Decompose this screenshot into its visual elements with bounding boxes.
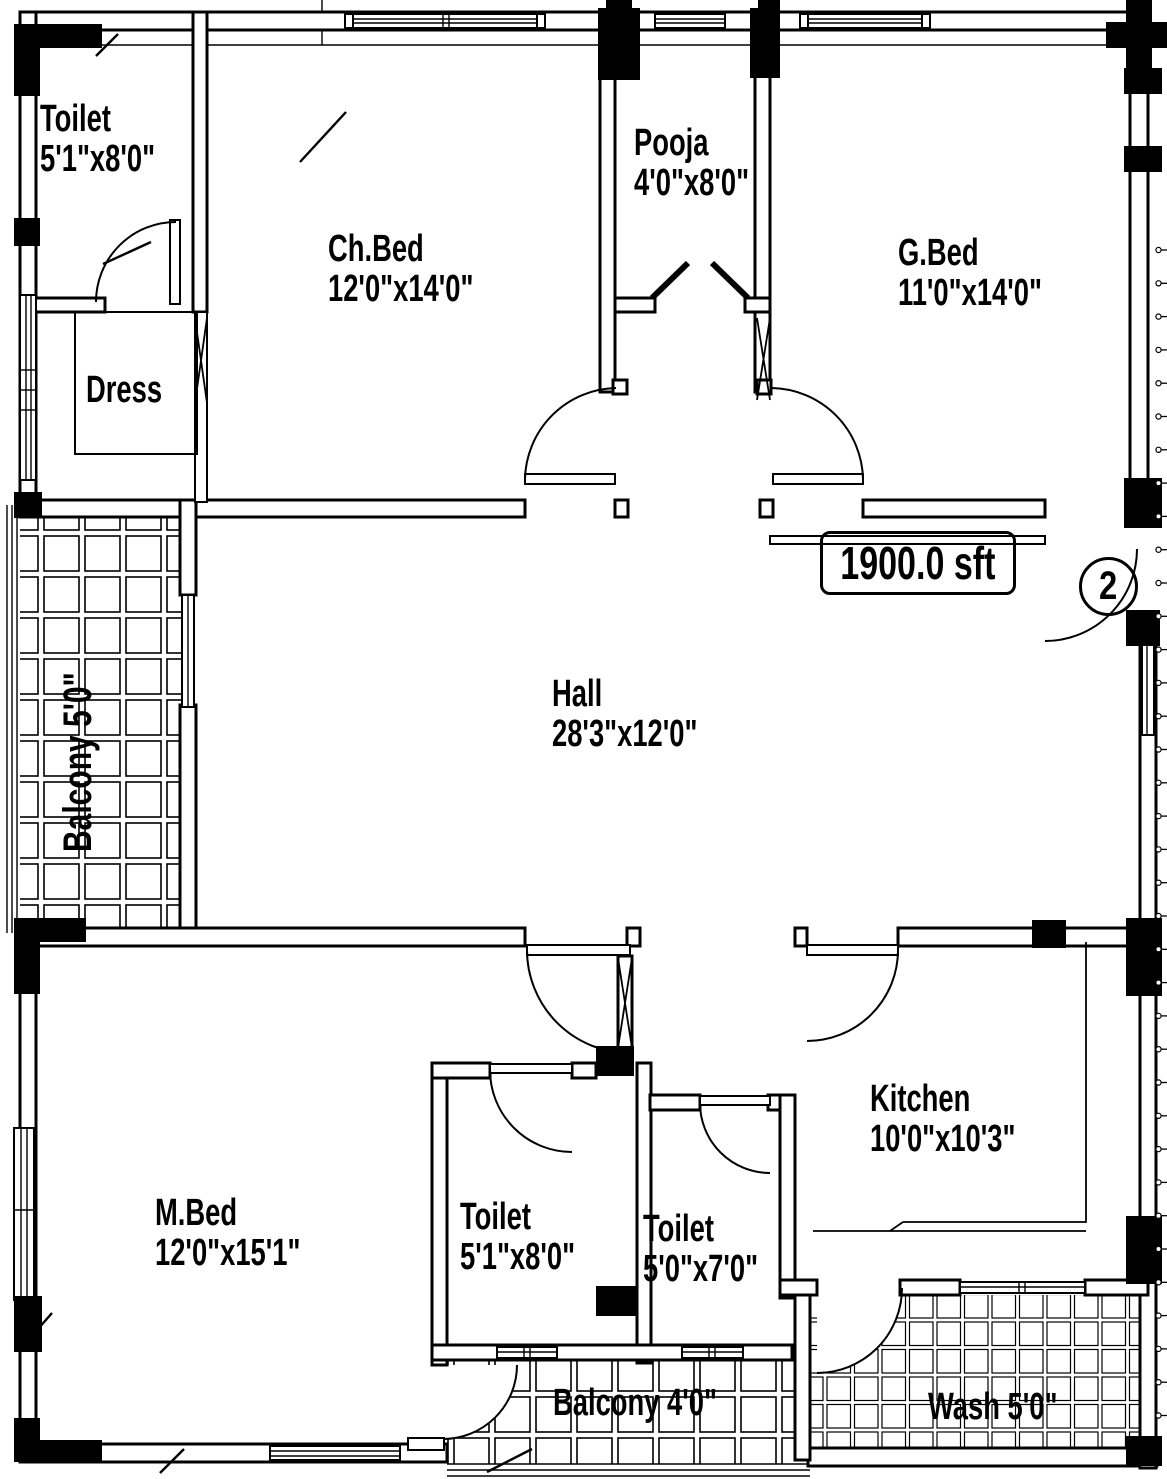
room-label-toilet-bottom-left: Toilet 5'1"x8'0" (460, 1198, 575, 1278)
room-label-ch-bed: Ch.Bed 12'0"x14'0" (328, 230, 473, 310)
unit-number-badge: 2 (1079, 557, 1138, 616)
room-label-kitchen: Kitchen 10'0"x10'3" (870, 1080, 1015, 1160)
floor-plan: Toilet 5'1"x8'0" Ch.Bed 12'0"x14'0" Pooj… (0, 0, 1167, 1479)
room-label-hall: Hall 28'3"x12'0" (552, 675, 697, 755)
balcony-left-tiles (20, 512, 182, 930)
room-label-wash: Wash 5'0" (928, 1388, 1057, 1428)
room-label-toilet-top: Toilet 5'1"x8'0" (40, 100, 155, 180)
balcony-left-railing (7, 505, 17, 933)
pooja-door-leaf (712, 263, 748, 298)
area-badge: 1900.0 sft (820, 531, 1016, 595)
room-label-balcony-bottom: Balcony 4'0" (553, 1384, 717, 1424)
room-label-m-bed: M.Bed 12'0"x15'1" (155, 1194, 300, 1274)
pooja-door-leaf (652, 263, 688, 298)
room-label-g-bed: G.Bed 11'0"x14'0" (898, 234, 1042, 314)
room-label-pooja: Pooja 4'0"x8'0" (634, 124, 749, 204)
room-label-dress: Dress (86, 371, 162, 411)
room-label-balcony-left: Balcony 5'0" (58, 672, 98, 852)
room-label-toilet-bottom-right: Toilet 5'0"x7'0" (643, 1210, 758, 1290)
